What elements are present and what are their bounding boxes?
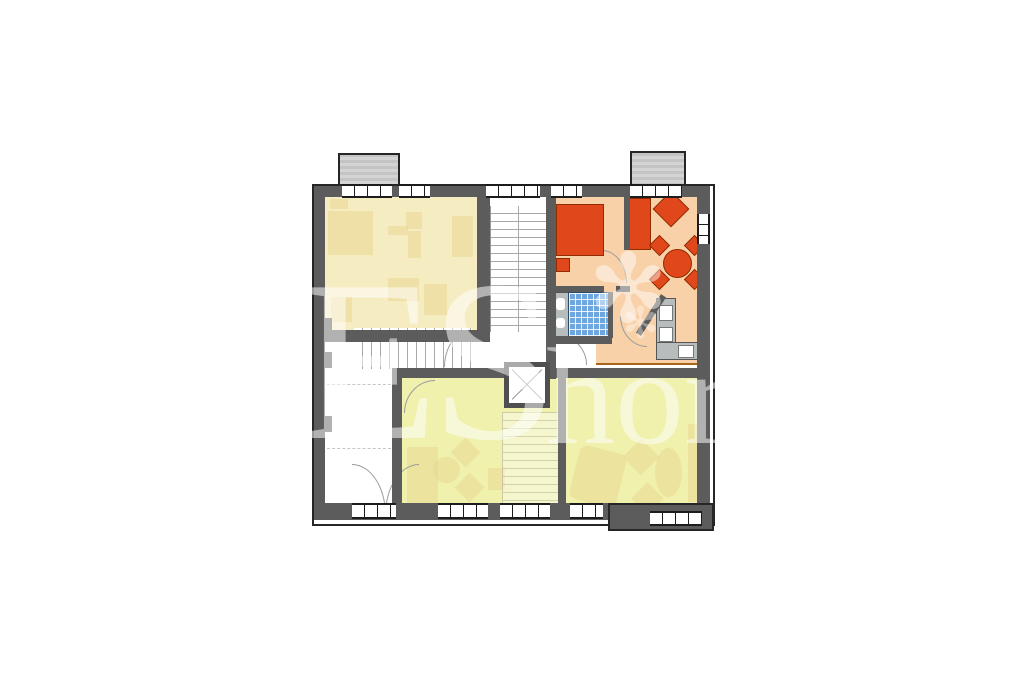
window xyxy=(342,184,392,198)
window xyxy=(438,503,488,519)
window xyxy=(630,184,682,198)
window xyxy=(352,503,396,519)
pilaster xyxy=(325,318,332,334)
floor-plan-canvas: ES hor ✻ ✻ xyxy=(0,0,1024,682)
window xyxy=(551,184,582,198)
window xyxy=(399,184,430,198)
pilaster xyxy=(325,416,332,432)
window xyxy=(570,503,603,519)
pilaster xyxy=(325,352,332,368)
window-side xyxy=(697,214,710,244)
window xyxy=(486,184,540,198)
window xyxy=(500,503,550,519)
building-outline xyxy=(312,184,715,526)
window-double xyxy=(650,511,702,526)
